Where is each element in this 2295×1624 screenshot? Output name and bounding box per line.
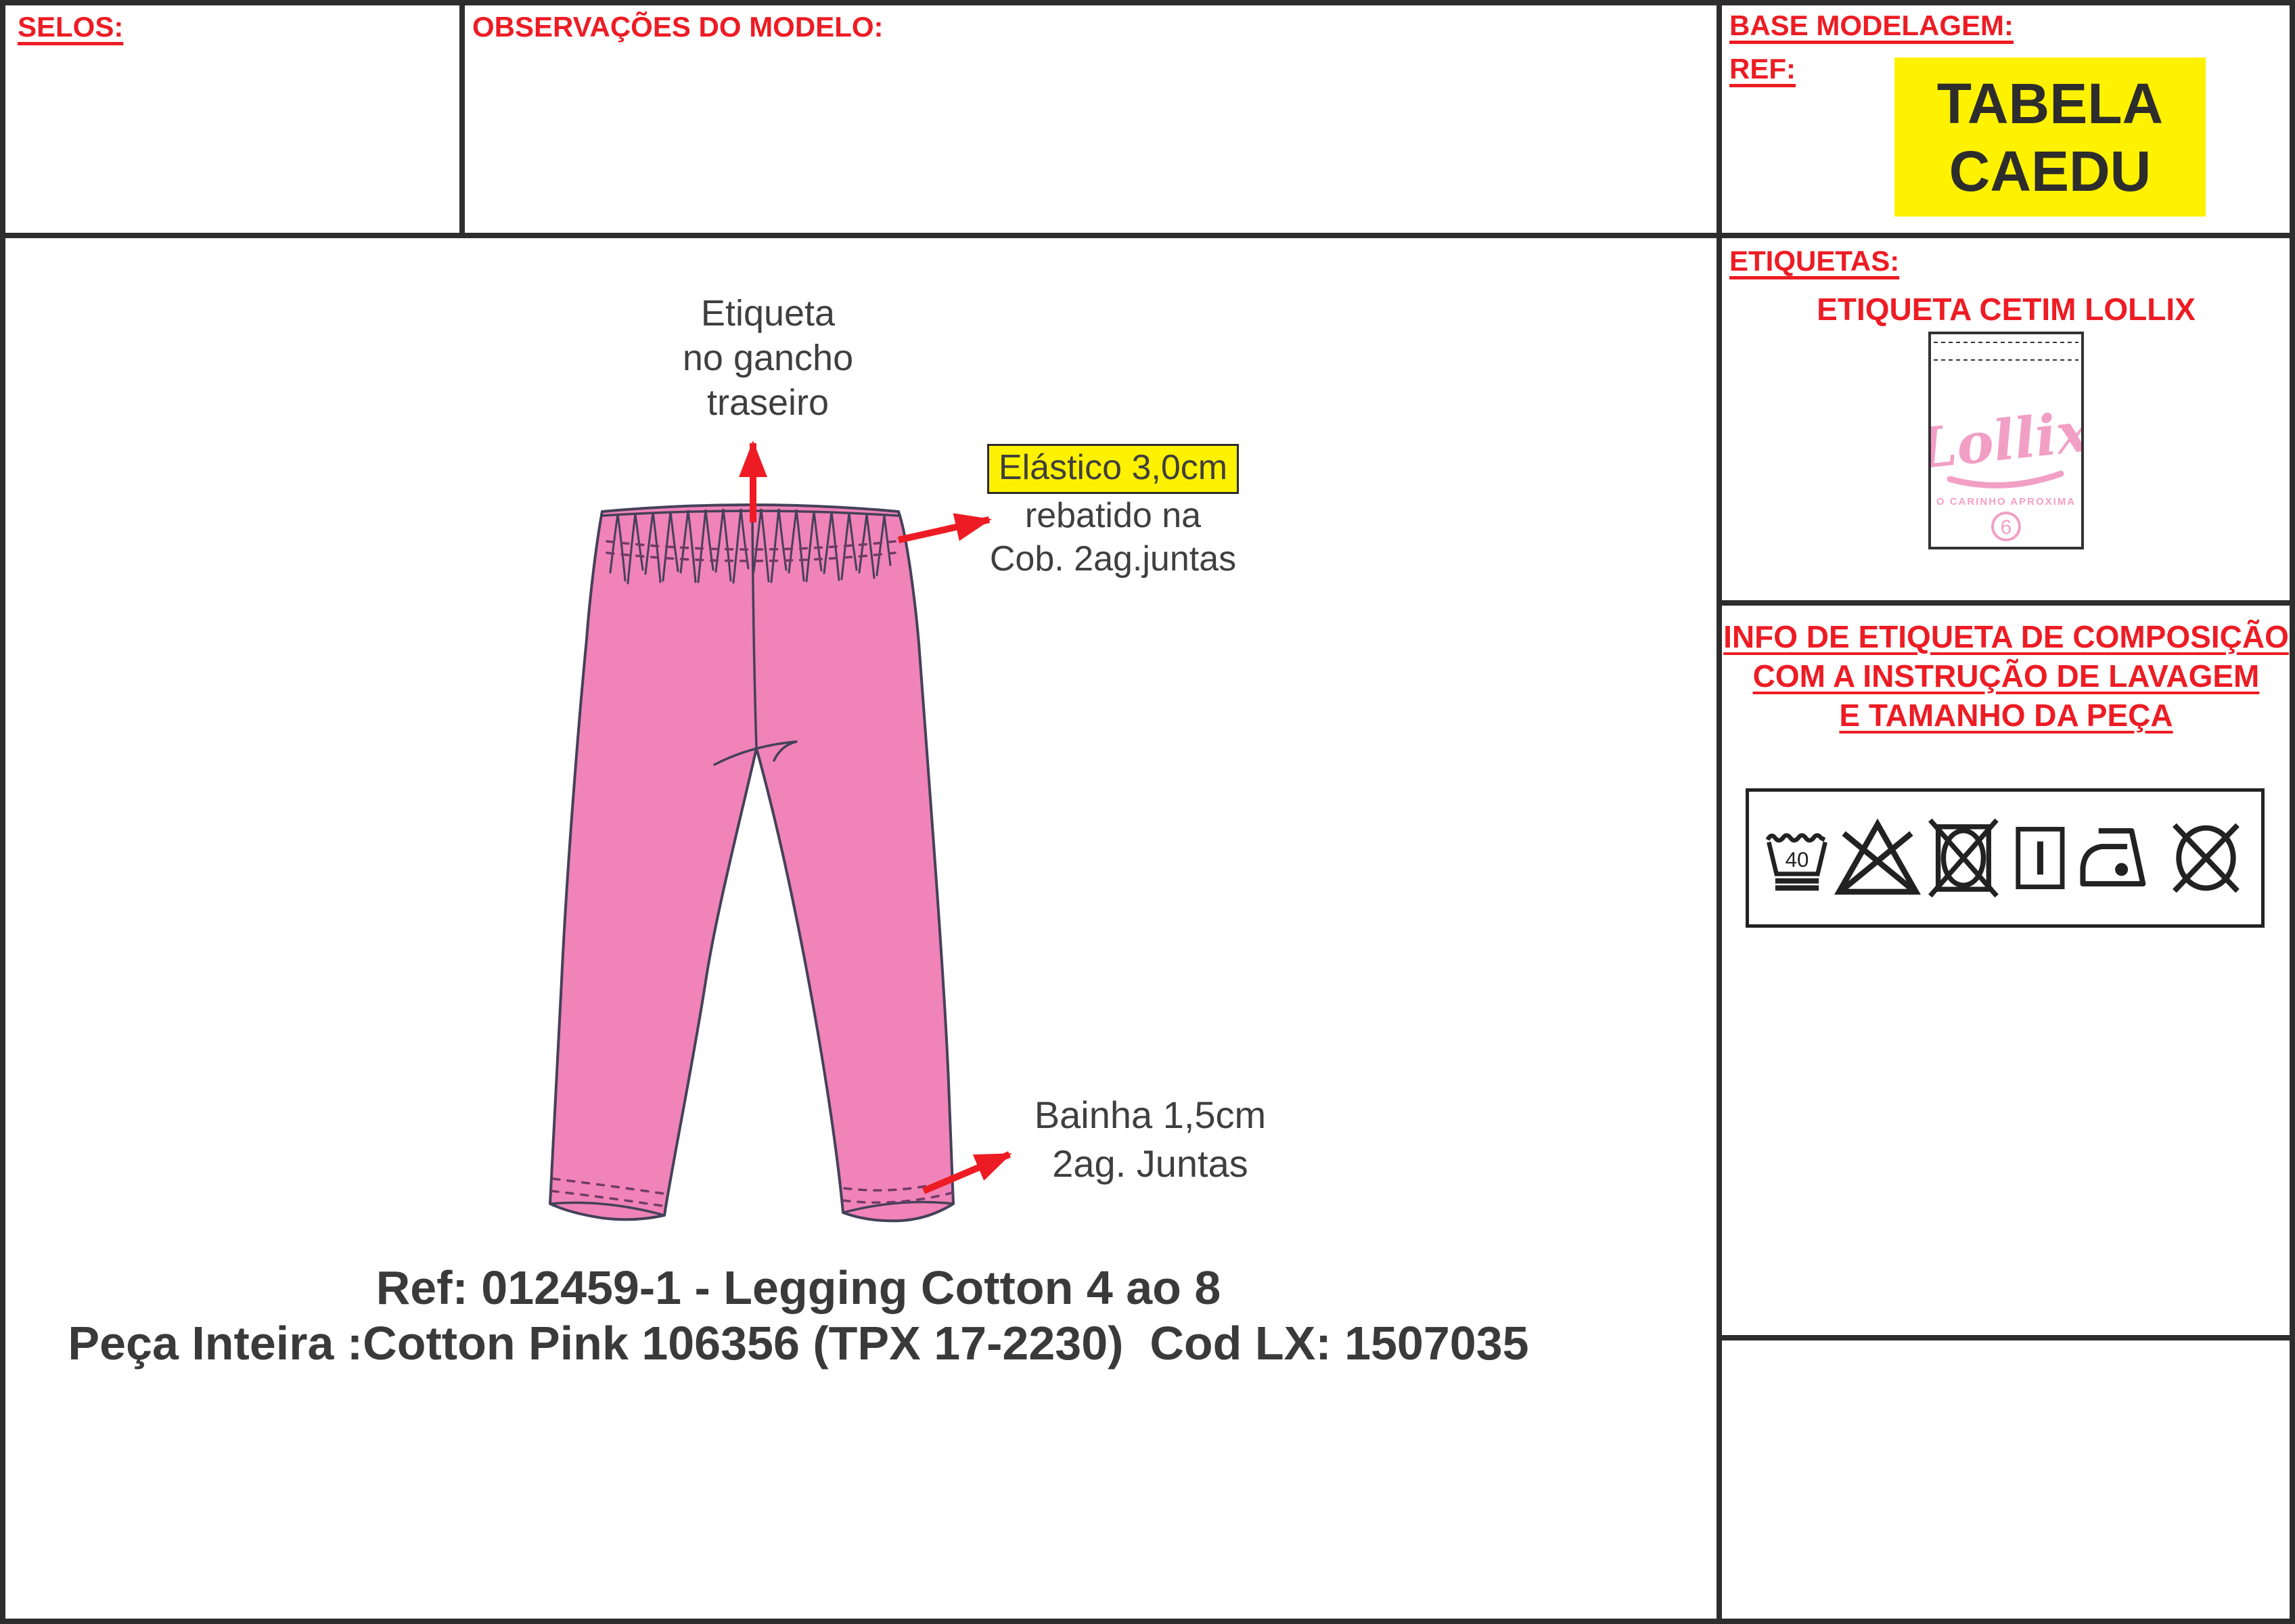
selos-header: SELOS: [18,11,123,43]
composicao-line3: E TAMANHO DA PEÇA [1722,696,2290,735]
lollix-tagline: O CARINHO APROXIMA [1936,496,2076,507]
line-dry-icon [2003,804,2077,912]
reference-text-block: Ref: 012459-1 - Legging Cotton 4 ao 8 Pe… [61,1260,1536,1371]
label-size-number: 6 [2001,516,2012,539]
iron-low-icon [2077,804,2163,912]
composicao-instructions: INFO DE ETIQUETA DE COMPOSIÇÃO COM A INS… [1722,617,2290,735]
lollix-label-art: Lollix O CARINHO APROXIMA 6 [1931,334,2081,547]
hem-note: Bainha 1,5cm 2ag. Juntas [1001,1091,1299,1188]
composicao-line1: INFO DE ETIQUETA DE COMPOSIÇÃO [1722,617,2290,656]
waist-tag-note-line1: Etiqueta [595,291,940,336]
elastic-note-line3: Cob. 2ag.juntas [944,537,1282,581]
waist-tag-note-line2: no gancho [595,336,940,380]
divider-horizontal-etiquetas-bottom [1717,600,2295,606]
divider-vertical-right-column [1717,0,1722,1624]
tabela-caedu-line1: TABELA [1937,70,2163,137]
do-not-dry-clean-icon [2163,804,2249,912]
lollix-satin-label: Lollix O CARINHO APROXIMA 6 [1928,332,2084,549]
elastic-note: Elástico 3,0cm rebatido na Cob. 2ag.junt… [944,444,1282,581]
reference-line2: Peça Inteira :Cotton Pink 106356 (TPX 17… [61,1315,1536,1371]
elastic-note-line2: rebatido na [944,494,1282,537]
care-symbols-strip: 40 [1746,788,2265,928]
observacoes-header: OBSERVAÇÕES DO MODELO: [472,11,884,43]
divider-horizontal-info-bottom [1717,1335,2295,1340]
base-modelagem-header: BASE MODELAGEM: [1729,9,2014,42]
tabela-caedu-line2: CAEDU [1949,137,2152,205]
ref-header: REF: [1729,53,1796,85]
do-not-bleach-icon [1832,804,1924,912]
do-not-tumble-dry-icon [1924,804,2003,912]
tech-spec-sheet: SELOS: OBSERVAÇÕES DO MODELO: BASE MODEL… [0,0,2295,1624]
waist-tag-note: Etiqueta no gancho traseiro [595,291,940,425]
waist-tag-note-line3: traseiro [595,380,940,425]
legging-body-back-view [550,505,953,1221]
wash-temperature: 40 [1786,848,1809,872]
divider-horizontal-top-row [0,233,2295,238]
wash-40-very-mild-icon: 40 [1761,804,1832,912]
hem-note-line1: Bainha 1,5cm [1001,1091,1299,1140]
composicao-line2: COM A INSTRUÇÃO DE LAVAGEM [1722,656,2290,696]
lollix-logo-text: Lollix [1931,399,2081,482]
reference-line1: Ref: 012459-1 - Legging Cotton 4 ao 8 [61,1260,1536,1315]
divider-vertical-selos-obs [459,0,465,238]
tabela-caedu-highlight: TABELA CAEDU [1894,58,2206,217]
hem-note-line2: 2ag. Juntas [1001,1140,1299,1188]
elastic-note-highlight: Elástico 3,0cm [987,444,1239,494]
etiqueta-cetim-lollix-title: ETIQUETA CETIM LOLLIX [1722,291,2290,328]
etiquetas-header: ETIQUETAS: [1729,245,1899,277]
